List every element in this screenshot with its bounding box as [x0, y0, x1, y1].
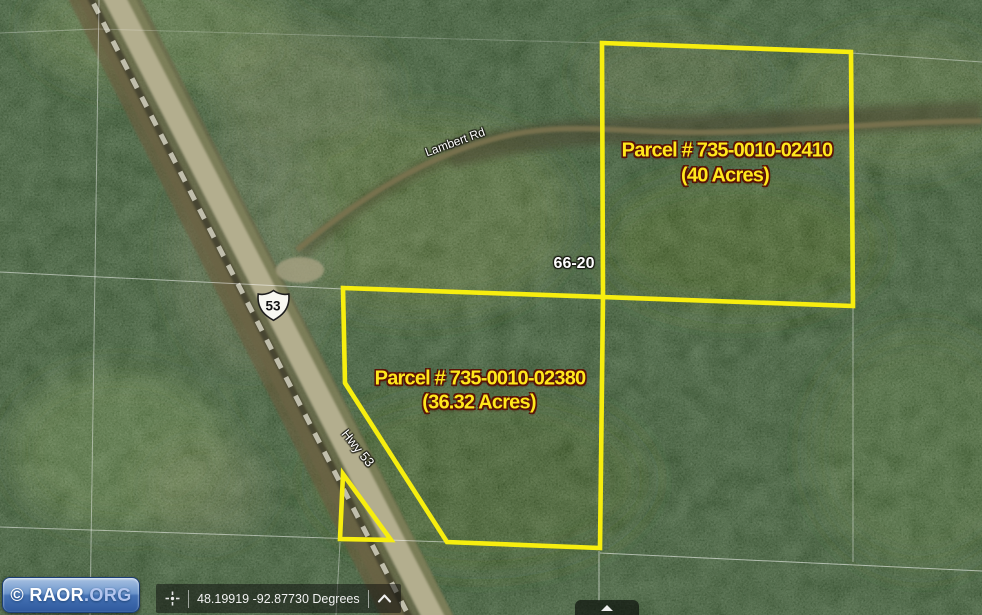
- raor-watermark-badge[interactable]: © RAOR.ORG: [2, 577, 140, 613]
- coordinates-readout: 48.19919 -92.87730 Degrees: [197, 592, 360, 606]
- chevron-up-icon[interactable]: [377, 593, 392, 604]
- crosshair-icon[interactable]: [165, 591, 180, 606]
- road-junction-pad: [276, 257, 324, 283]
- watermark-copyright: © RAOR: [10, 585, 84, 606]
- expand-panel-tab[interactable]: [575, 600, 639, 615]
- watermark-domain: .ORG: [84, 585, 132, 606]
- statusbar-divider: [188, 590, 189, 608]
- expand-up-icon: [601, 605, 613, 611]
- statusbar-divider: [368, 590, 369, 608]
- aerial-map-canvas[interactable]: [0, 0, 982, 615]
- map-viewport[interactable]: Parcel # 735-0010-02410 (40 Acres) Parce…: [0, 0, 982, 615]
- coordinate-status-bar: 48.19919 -92.87730 Degrees: [156, 584, 401, 613]
